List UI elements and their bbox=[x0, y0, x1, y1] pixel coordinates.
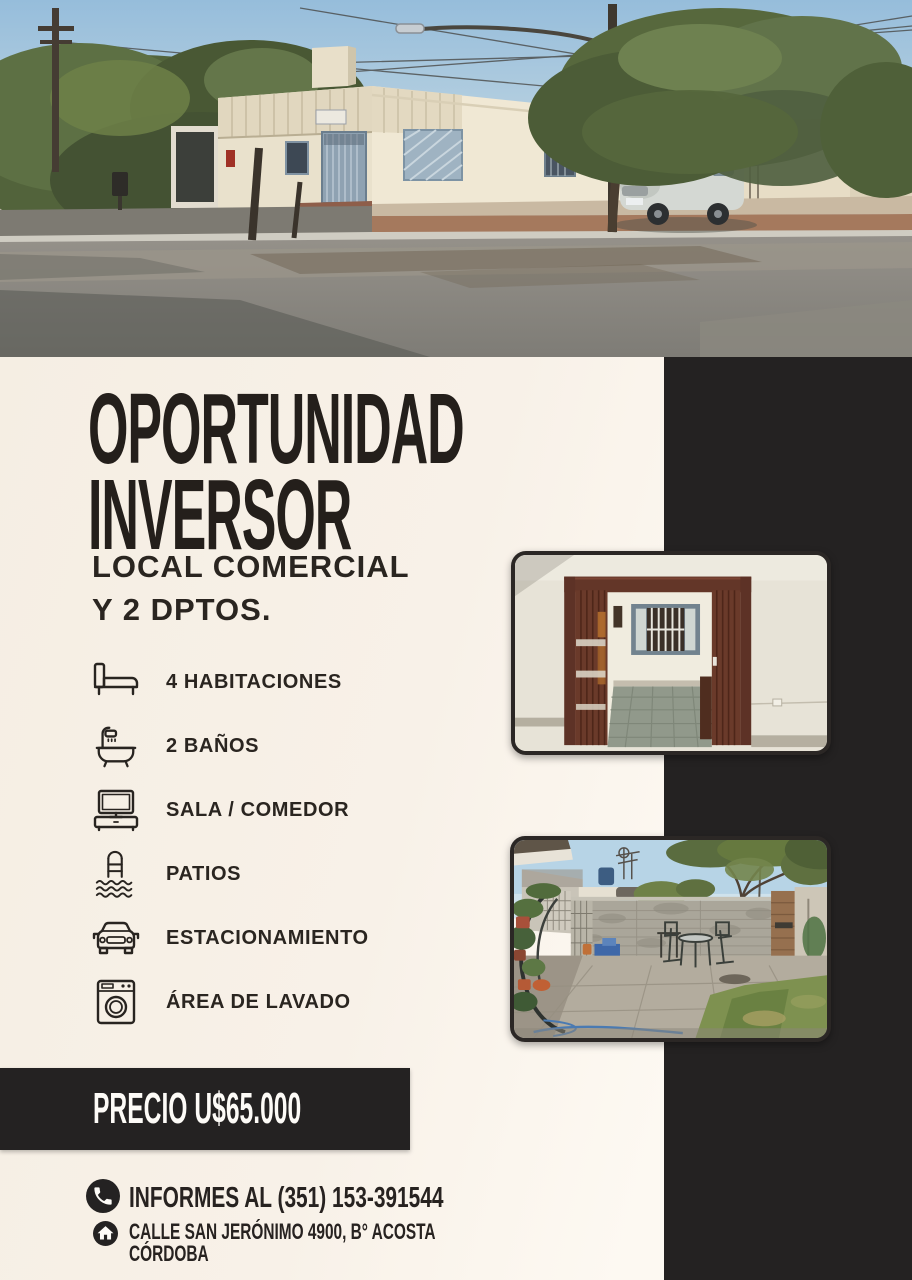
phone-icon bbox=[86, 1179, 120, 1218]
feature-bathrooms: 2 BAÑOS bbox=[88, 714, 369, 778]
bathtub-icon bbox=[88, 719, 144, 773]
feature-laundry: ÁREA DE LAVADO bbox=[88, 970, 369, 1034]
feature-label: PATIOS bbox=[166, 863, 241, 886]
washing-machine-icon bbox=[88, 975, 144, 1029]
street-photo bbox=[0, 0, 912, 357]
phone-row: INFORMES AL (351) 153-391544 bbox=[86, 1179, 566, 1218]
price-label: PRECIO U$65.000 bbox=[93, 1084, 301, 1134]
address-row: CALLE SAN JERÓNIMO 4900, B° ACOSTA CÓRDO… bbox=[93, 1221, 567, 1265]
feature-label: 4 HABITACIONES bbox=[166, 671, 342, 694]
patio-photo-art bbox=[514, 840, 827, 1038]
patio-photo bbox=[510, 836, 831, 1042]
subtitle-line-1: LOCAL COMERCIAL bbox=[92, 545, 410, 588]
car-icon bbox=[88, 911, 144, 965]
home-icon bbox=[93, 1221, 118, 1251]
address-line-2: CÓRDOBA bbox=[129, 1243, 436, 1265]
subtitle-line-2: Y 2 DPTOS. bbox=[92, 588, 410, 631]
feature-label: ESTACIONAMIENTO bbox=[166, 927, 369, 950]
feature-living-room: SALA / COMEDOR bbox=[88, 778, 369, 842]
bed-icon bbox=[88, 655, 144, 709]
feature-label: ÁREA DE LAVADO bbox=[166, 991, 351, 1014]
interior-photo-art bbox=[515, 555, 827, 751]
feature-list: 4 HABITACIONES 2 BAÑOS bbox=[88, 650, 369, 1034]
real-estate-flyer: OPORTUNIDAD INVERSOR LOCAL COMERCIAL Y 2… bbox=[0, 0, 912, 1280]
price-banner: PRECIO U$65.000 bbox=[0, 1068, 410, 1150]
dark-side-panel bbox=[664, 357, 912, 1280]
feature-patios: PATIOS bbox=[88, 842, 369, 906]
feature-label: SALA / COMEDOR bbox=[166, 799, 349, 822]
feature-parking: ESTACIONAMIENTO bbox=[88, 906, 369, 970]
address-label: CALLE SAN JERÓNIMO 4900, B° ACOSTA CÓRDO… bbox=[129, 1221, 436, 1265]
tv-icon bbox=[88, 783, 144, 837]
feature-label: 2 BAÑOS bbox=[166, 735, 259, 758]
pool-ladder-icon bbox=[88, 847, 144, 901]
street-photo-art bbox=[0, 0, 912, 357]
page-title: OPORTUNIDAD INVERSOR bbox=[88, 386, 464, 558]
interior-photo bbox=[511, 551, 831, 755]
feature-bedrooms: 4 HABITACIONES bbox=[88, 650, 369, 714]
subtitle: LOCAL COMERCIAL Y 2 DPTOS. bbox=[92, 545, 410, 631]
address-line-1: CALLE SAN JERÓNIMO 4900, B° ACOSTA bbox=[129, 1221, 436, 1243]
phone-label: INFORMES AL (351) 153-391544 bbox=[129, 1182, 444, 1215]
